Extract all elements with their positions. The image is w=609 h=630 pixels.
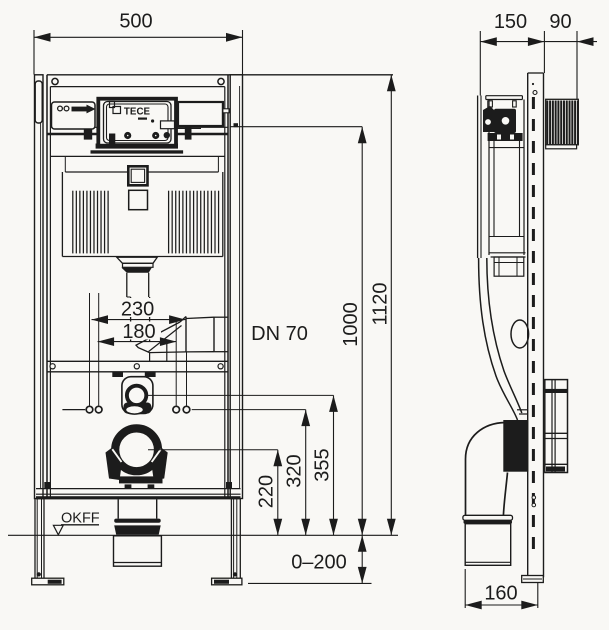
svg-text:0–200: 0–200 bbox=[291, 552, 347, 574]
svg-text:OKFF: OKFF bbox=[61, 510, 100, 526]
svg-text:230: 230 bbox=[121, 298, 154, 320]
svg-text:150: 150 bbox=[494, 11, 527, 33]
svg-text:355: 355 bbox=[312, 448, 334, 481]
svg-text:160: 160 bbox=[484, 583, 517, 605]
svg-text:320: 320 bbox=[284, 454, 306, 487]
svg-text:1000: 1000 bbox=[340, 302, 362, 347]
svg-text:DN 70: DN 70 bbox=[251, 323, 308, 345]
svg-text:90: 90 bbox=[549, 11, 571, 33]
svg-text:220: 220 bbox=[256, 475, 278, 508]
svg-text:180: 180 bbox=[122, 321, 155, 343]
svg-text:TECE: TECE bbox=[124, 106, 151, 117]
svg-text:1120: 1120 bbox=[370, 282, 392, 325]
svg-text:500: 500 bbox=[119, 11, 152, 33]
